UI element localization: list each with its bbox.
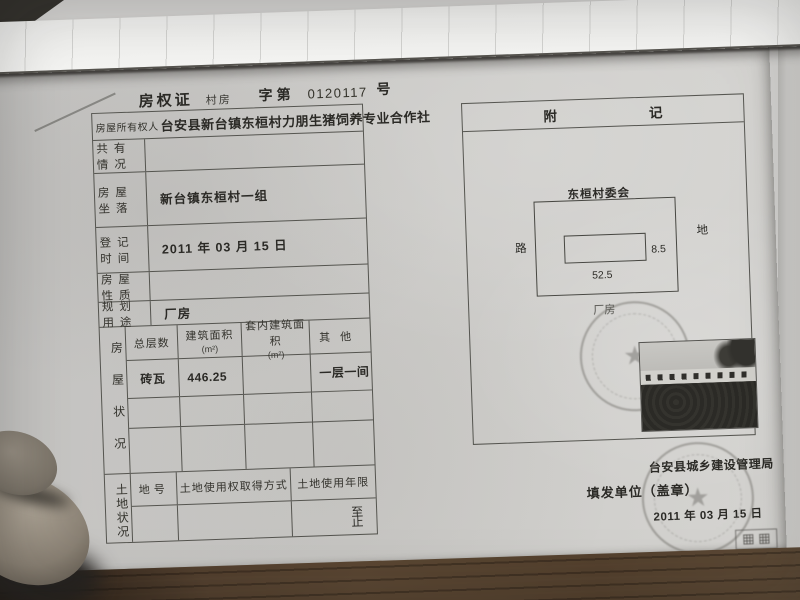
land-term-cell: 至 止 (292, 498, 377, 536)
building-length-value: 52.5 (592, 269, 613, 282)
certificate-page: 房权证 村房 字第 0120117 号 房屋所有权人 台安县新台镇东桓村力朋生猪… (0, 34, 787, 576)
col-inner-area: 套内建筑面积 (m²) (242, 321, 311, 356)
row-label: 登记时间 (96, 226, 150, 273)
land-status-section: 土地状况 地号 土地使用权取得方式 土地使用年限 (105, 465, 377, 542)
owner-label: 房屋所有权人 (92, 117, 158, 134)
serial-suffix: 号 (376, 79, 391, 99)
house-status-grid: 总层数 建筑面积 (m²) 套内建筑面积 (m²) 其他 (126, 318, 375, 472)
building-photo (638, 338, 758, 432)
serial-number: 0120117 (307, 84, 368, 101)
row-value: 新台镇东桓村一组 (146, 165, 366, 226)
serial-prefix: 字第 (258, 84, 295, 105)
term-end: 止 (351, 513, 364, 530)
seal-star-icon: ★ (686, 482, 710, 514)
small-rect-stamp (735, 528, 778, 549)
certificate-title: 房权证 (138, 89, 193, 112)
col-land-number: 地号 (131, 472, 178, 506)
col-land-acquisition: 土地使用权取得方式 (177, 468, 292, 504)
house-status-section: 房屋状况 总层数 建筑面积 (m²) 套内建筑面积 (m²) (100, 318, 375, 474)
house-data-row (129, 420, 374, 472)
col-total-floors: 总层数 (126, 325, 179, 360)
col-land-term: 土地使用年限 (291, 465, 376, 500)
land-status-side-label: 土地状况 (105, 474, 133, 543)
appendix-title: 附 记 (462, 94, 744, 132)
land-value-row: 至 止 (132, 498, 377, 541)
row-location: 房屋坐落 新台镇东桓村一组 (94, 165, 366, 228)
land-label: 地 (696, 222, 708, 238)
appendix-box: 附 记 东桓村委会 8.5 52.5 路 地 厂房 ★ (461, 93, 756, 445)
site-plan-building-rect (564, 233, 647, 264)
owner-name: 台安县新台镇东桓村力朋生猪饲养专业合作社 (160, 106, 431, 134)
land-status-grid: 地号 土地使用权取得方式 土地使用年限 至 (131, 465, 377, 541)
certificate-table: 房屋所有权人 台安县新台镇东桓村力朋生猪饲养专业合作社 共有情况 房屋坐落 新台… (91, 104, 378, 544)
col-other: 其他 (309, 318, 370, 353)
certificate-book-type: 村房 (205, 91, 232, 108)
row-label: 房屋坐落 (94, 172, 148, 227)
row-value: 2011 年 03 月 15 日 (148, 219, 367, 272)
row-label: 规划用途 (99, 301, 152, 327)
row-label: 共有情况 (93, 139, 146, 173)
road-label: 路 (515, 240, 527, 256)
photo-of-certificate: 房权证 村房 字第 0120117 号 房屋所有权人 台安县新台镇东桓村力朋生猪… (0, 0, 800, 600)
col-floor-area: 建筑面积 (m²) (178, 323, 243, 358)
building-depth-value: 8.5 (651, 243, 666, 256)
